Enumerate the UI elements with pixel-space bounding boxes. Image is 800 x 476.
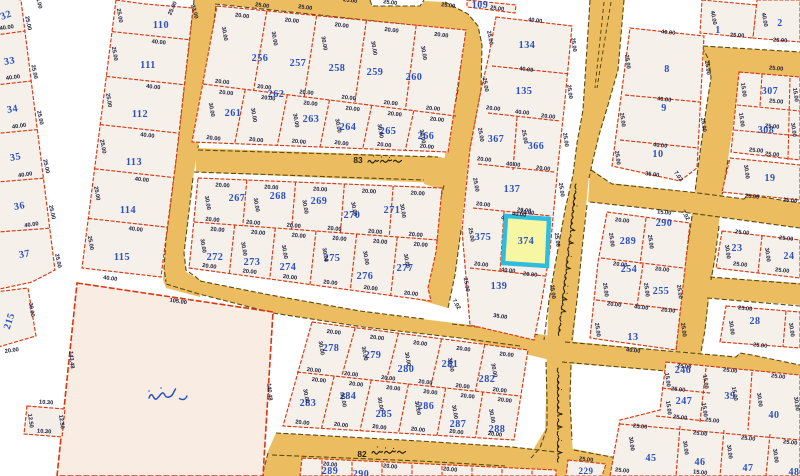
svg-text:263: 263 [303, 114, 320, 125]
svg-text:33: 33 [3, 55, 16, 68]
svg-text:47: 47 [743, 463, 754, 474]
svg-text:111: 111 [140, 60, 156, 71]
svg-text:24: 24 [784, 251, 795, 262]
svg-text:10: 10 [652, 149, 663, 160]
svg-text:137: 137 [504, 184, 521, 195]
svg-text:25.00: 25.00 [769, 98, 784, 105]
svg-text:139: 139 [491, 281, 508, 292]
svg-text:115: 115 [114, 252, 130, 263]
svg-text:9: 9 [661, 103, 667, 114]
svg-text:48: 48 [789, 467, 800, 476]
svg-text:113: 113 [126, 157, 142, 168]
svg-text:13: 13 [627, 332, 638, 343]
svg-text:20.00: 20.00 [408, 232, 423, 239]
svg-text:271: 271 [384, 205, 401, 216]
svg-text:8: 8 [664, 64, 670, 75]
svg-text:25.00: 25.00 [769, 65, 784, 72]
svg-text:375: 375 [475, 232, 492, 243]
svg-text:10.30: 10.30 [39, 400, 54, 407]
svg-text:20.00: 20.00 [362, 189, 377, 196]
svg-text:272: 272 [207, 252, 224, 263]
svg-text:20.00: 20.00 [210, 227, 225, 234]
svg-text:28: 28 [750, 316, 761, 327]
svg-text:112: 112 [132, 109, 148, 120]
svg-text:34: 34 [6, 103, 19, 116]
svg-text:374: 374 [518, 236, 535, 247]
svg-text:20.00: 20.00 [215, 183, 230, 190]
svg-text:83: 83 [353, 155, 363, 165]
svg-text:40: 40 [769, 410, 780, 421]
svg-text:257: 257 [290, 58, 307, 69]
svg-text:2: 2 [777, 18, 783, 29]
svg-text:307: 307 [762, 86, 779, 97]
svg-text:20.00: 20.00 [313, 187, 328, 194]
svg-text:134: 134 [519, 40, 536, 51]
svg-text:20.00: 20.00 [327, 226, 342, 233]
svg-text:20.00: 20.00 [323, 461, 338, 468]
svg-text:258: 258 [329, 63, 346, 74]
svg-text:20.00: 20.00 [410, 191, 425, 198]
svg-text:1: 1 [715, 25, 721, 36]
svg-text:25.00: 25.00 [773, 38, 788, 45]
svg-text:260: 260 [406, 72, 423, 83]
svg-text:20.00: 20.00 [368, 229, 383, 236]
svg-text:20.00: 20.00 [383, 463, 398, 470]
svg-text:36: 36 [13, 200, 26, 213]
svg-text:256: 256 [252, 53, 269, 64]
svg-text:25.00: 25.00 [749, 147, 764, 154]
svg-text:20.00: 20.00 [443, 466, 458, 473]
svg-text:114: 114 [120, 205, 136, 216]
svg-text:20.00: 20.00 [413, 242, 428, 249]
svg-text:46: 46 [695, 457, 706, 468]
svg-text:110: 110 [153, 20, 169, 31]
svg-text:20.00: 20.00 [291, 233, 306, 240]
svg-text:289: 289 [620, 236, 637, 247]
svg-text:82: 82 [357, 449, 367, 459]
svg-text:261: 261 [225, 108, 242, 119]
svg-text:20.00: 20.00 [373, 239, 388, 246]
svg-text:25.00: 25.00 [730, 33, 745, 40]
svg-text:109: 109 [472, 0, 489, 11]
svg-text:20.00: 20.00 [251, 230, 266, 237]
svg-text:35: 35 [9, 151, 22, 164]
svg-text:273: 273 [244, 257, 261, 268]
svg-text:290: 290 [353, 469, 370, 476]
svg-text:10.30: 10.30 [37, 429, 52, 436]
svg-text:367: 367 [488, 134, 505, 145]
svg-text:15.00: 15.00 [693, 469, 708, 476]
svg-text:135: 135 [516, 86, 533, 97]
svg-text:269: 269 [311, 196, 328, 207]
svg-text:274: 274 [280, 262, 297, 273]
svg-text:19: 19 [765, 173, 776, 184]
svg-text:255: 255 [653, 286, 670, 297]
svg-text:45: 45 [646, 453, 657, 464]
svg-text:267: 267 [229, 193, 246, 204]
svg-text:40.00: 40.00 [512, 211, 527, 218]
svg-text:25.00: 25.00 [765, 123, 780, 130]
svg-text:20.00: 20.00 [246, 220, 261, 227]
svg-text:25.00: 25.00 [765, 151, 780, 158]
svg-text:268: 268 [270, 191, 287, 202]
svg-text:37: 37 [18, 248, 31, 261]
svg-text:276: 276 [357, 271, 374, 282]
svg-text:247: 247 [676, 396, 693, 407]
svg-text:259: 259 [367, 67, 384, 78]
svg-text:20.00: 20.00 [332, 236, 347, 243]
svg-text:290: 290 [656, 218, 673, 229]
svg-text:20.00: 20.00 [205, 217, 220, 224]
svg-text:229: 229 [579, 466, 594, 476]
svg-text:23: 23 [731, 243, 742, 254]
svg-text:20.00: 20.00 [264, 185, 279, 192]
svg-text:366: 366 [528, 141, 545, 152]
svg-text:20.00: 20.00 [286, 223, 301, 230]
svg-text:25.00: 25.00 [783, 197, 798, 204]
svg-text:25.00: 25.00 [745, 193, 760, 200]
